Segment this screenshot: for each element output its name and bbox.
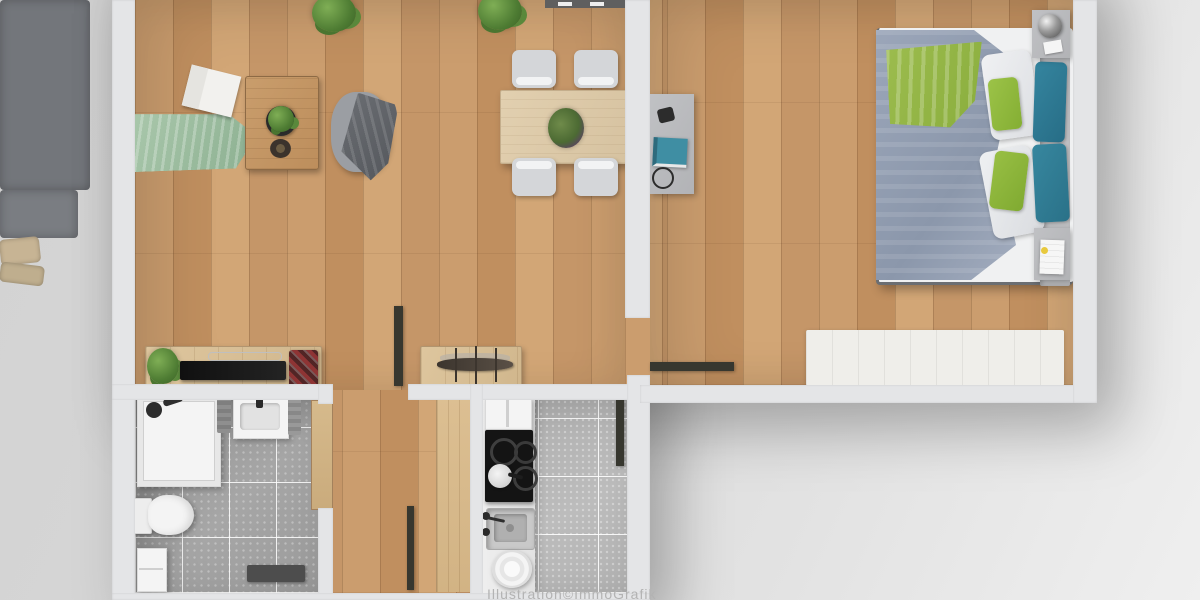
dining-chair (512, 50, 556, 88)
top-sideboard-item (558, 2, 572, 6)
wall-kitchen-right (627, 375, 650, 600)
bath-mat (247, 565, 305, 582)
watermark-text: Illustration©ImmoGrafik (487, 586, 656, 600)
green-pillow (987, 77, 1022, 132)
teal-book (652, 137, 687, 168)
towel (288, 397, 301, 435)
floor-plan-canvas: Illustration©ImmoGrafik (0, 0, 1200, 600)
table-centerpiece (548, 108, 584, 148)
ship-mast (495, 348, 497, 382)
chair-backrest (516, 161, 552, 169)
open-door-kitchen (616, 398, 624, 466)
bath-shelf-divider (139, 568, 163, 570)
sink-drain (506, 524, 514, 532)
white-rug (806, 330, 1064, 386)
wall-bath-stub (318, 384, 333, 404)
wall-hall-kitchen (470, 384, 483, 600)
wall-mid-left (112, 384, 320, 400)
kitchen-shelf-divider (506, 399, 509, 427)
corner-sofa-top-seat (0, 190, 78, 238)
open-door-kitchen-leaf (407, 506, 414, 590)
ship-mast (475, 346, 477, 384)
glasses (652, 167, 674, 189)
top-sideboard-edge (545, 0, 625, 8)
chair-backrest (516, 77, 552, 85)
burner (514, 441, 537, 464)
green-pillow (989, 150, 1030, 212)
bath-shelf (137, 548, 167, 592)
dining-chair (574, 50, 618, 88)
open-door-bedroom (650, 362, 734, 371)
flat-tv (180, 361, 286, 380)
teal-pillow (1032, 143, 1070, 223)
sideboard-plant (147, 348, 179, 384)
teal-pillow (1033, 61, 1068, 142)
shower-head (146, 402, 162, 418)
towel (217, 397, 231, 433)
chair-backrest (578, 77, 614, 85)
dining-chair (574, 158, 618, 196)
open-door-hall (436, 398, 471, 592)
toilet-bowl (148, 495, 194, 535)
potted-plant (268, 106, 294, 132)
chair-backrest (578, 161, 614, 169)
decor-bowl (270, 139, 291, 158)
smiley-sticker (1041, 247, 1048, 254)
wall-living-bedroom (625, 0, 650, 318)
wall-outer-right (1073, 0, 1097, 403)
wall-bedroom-bottom (640, 385, 1097, 403)
wall-mid-right (408, 384, 650, 400)
plate-stack (492, 550, 532, 588)
ship-mast (455, 348, 457, 382)
open-door-bath (311, 400, 333, 510)
notepad (1039, 240, 1064, 275)
sofa-pillow (0, 261, 45, 286)
sphere-lamp (1038, 14, 1062, 38)
corner-sofa-chaise (0, 0, 90, 190)
tv-stand (208, 352, 282, 361)
open-door-living (394, 306, 403, 386)
wall-bath-hall (318, 508, 333, 600)
dining-chair (512, 158, 556, 196)
top-sideboard-item (590, 2, 604, 6)
faucet-knob (482, 528, 490, 536)
wall-outer-left (112, 0, 135, 600)
